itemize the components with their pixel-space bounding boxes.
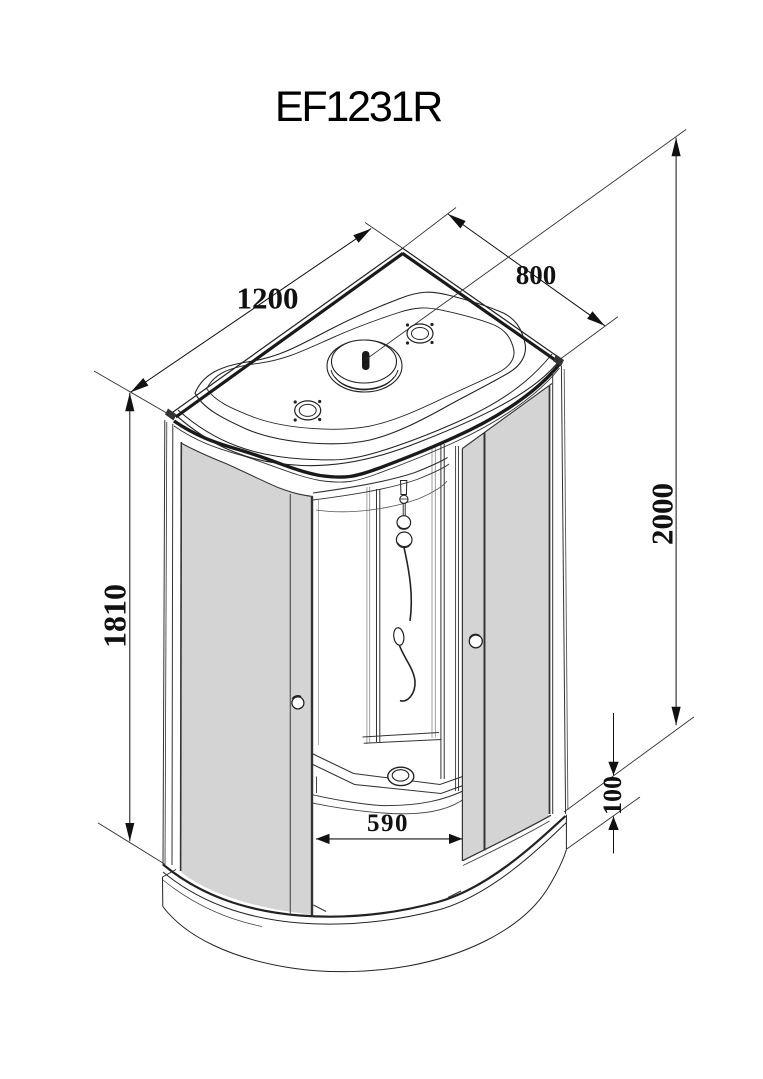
svg-text:2000: 2000 bbox=[645, 483, 680, 545]
svg-text:800: 800 bbox=[516, 260, 557, 290]
svg-text:100: 100 bbox=[598, 776, 627, 815]
svg-text:1810: 1810 bbox=[97, 584, 133, 648]
svg-text:EF1231R: EF1231R bbox=[275, 83, 442, 131]
svg-text:590: 590 bbox=[367, 810, 409, 837]
svg-text:1200: 1200 bbox=[237, 281, 299, 316]
